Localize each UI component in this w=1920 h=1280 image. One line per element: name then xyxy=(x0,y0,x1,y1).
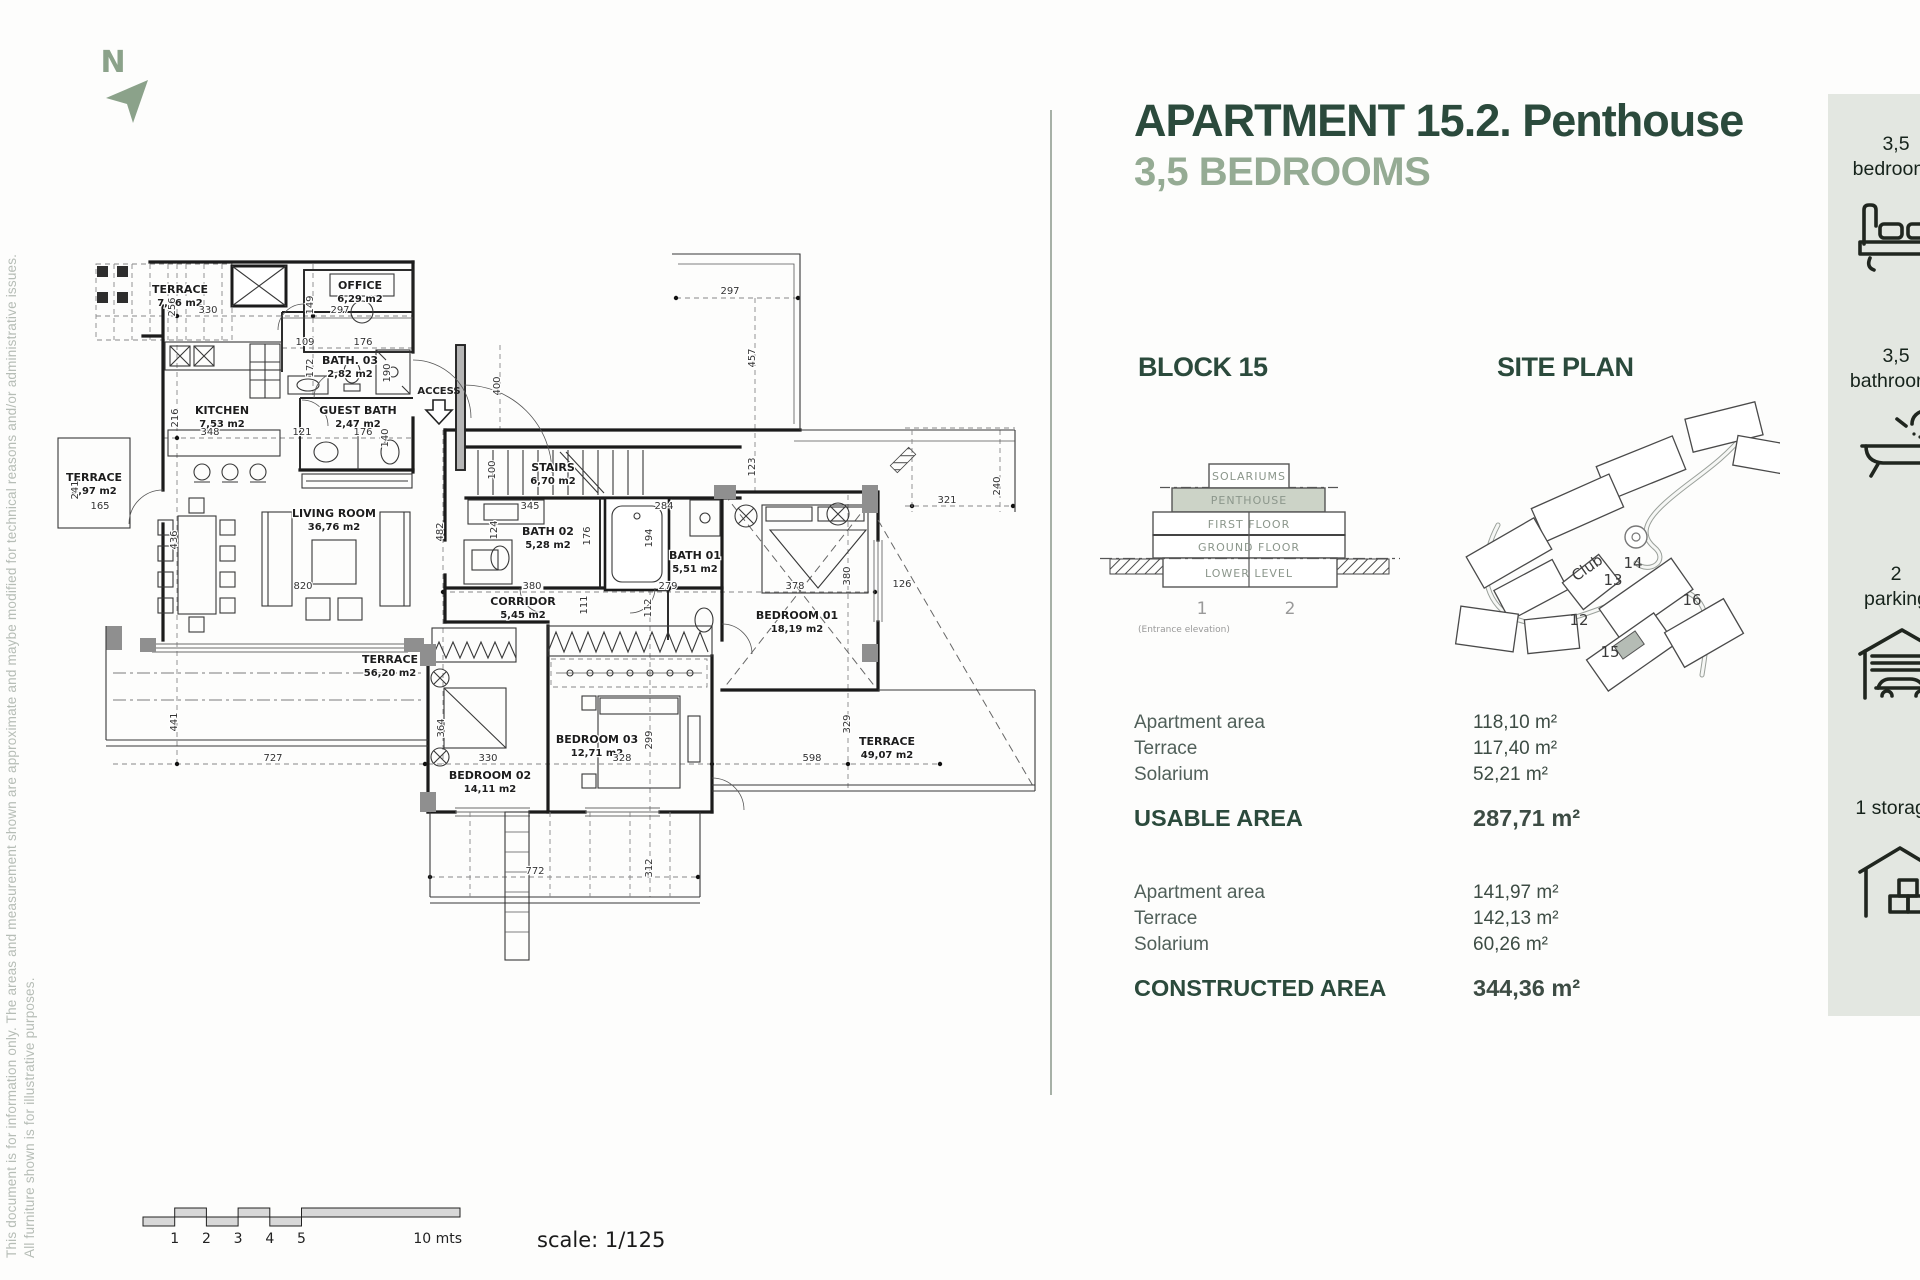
svg-text:321: 321 xyxy=(937,495,956,506)
total-label: CONSTRUCTED AREA xyxy=(1134,973,1473,1003)
svg-text:299: 299 xyxy=(644,730,655,749)
svg-text:5,45 m2: 5,45 m2 xyxy=(500,610,546,621)
svg-text:7,56 m2: 7,56 m2 xyxy=(157,298,203,309)
total-value: 344,36 m² xyxy=(1473,973,1580,1003)
sidebar-item-parking: 2 parking xyxy=(1836,562,1920,612)
unit-number: 2 xyxy=(1285,599,1296,619)
svg-text:328: 328 xyxy=(612,753,631,764)
svg-text:109: 109 xyxy=(295,337,314,348)
row-value: 117,40 m² xyxy=(1473,736,1557,762)
svg-text:OFFICE: OFFICE xyxy=(338,279,382,292)
row-value: 141,97 m² xyxy=(1473,880,1559,906)
svg-text:5,51 m2: 5,51 m2 xyxy=(672,564,718,575)
svg-text:123: 123 xyxy=(747,457,758,476)
svg-text:112: 112 xyxy=(643,598,654,617)
level-label: GROUND FLOOR xyxy=(1198,541,1300,554)
svg-text:598: 598 xyxy=(802,753,821,764)
table-row: Solarium 60,26 m² xyxy=(1134,932,1604,958)
row-label: Solarium xyxy=(1134,932,1473,958)
wardrobes xyxy=(432,626,712,687)
scale-tick: 1 xyxy=(170,1231,179,1247)
block15-label: 15 xyxy=(1600,643,1619,661)
svg-text:BEDROOM 02: BEDROOM 02 xyxy=(449,769,531,782)
svg-text:312: 312 xyxy=(644,858,655,877)
svg-text:124: 124 xyxy=(489,520,500,539)
north-label: N xyxy=(100,45,125,80)
svg-text:KITCHEN: KITCHEN xyxy=(195,404,249,417)
svg-text:279: 279 xyxy=(658,581,677,592)
storage-label: 1 storage xyxy=(1855,797,1920,819)
svg-text:400: 400 xyxy=(492,376,503,395)
bathrooms-label: bathrooms xyxy=(1850,370,1920,392)
block16-label: 16 xyxy=(1682,591,1701,609)
disclaimer-line2: All furniture shown is for illustrative … xyxy=(22,977,37,1258)
block12-label: 12 xyxy=(1569,611,1588,629)
north-compass-icon: N xyxy=(100,45,148,123)
table-row: Solarium 52,21 m² xyxy=(1134,762,1604,788)
svg-text:216: 216 xyxy=(170,408,181,427)
svg-text:121: 121 xyxy=(292,427,311,438)
table-row: Terrace 142,13 m² xyxy=(1134,906,1604,932)
sidebar-item-bedrooms: 3,5 bedrooms xyxy=(1836,132,1920,182)
svg-text:TERRACE: TERRACE xyxy=(859,735,915,748)
svg-text:378: 378 xyxy=(785,581,804,592)
svg-text:441: 441 xyxy=(169,712,180,731)
svg-text:126: 126 xyxy=(892,579,911,590)
svg-text:457: 457 xyxy=(747,348,758,367)
row-value: 142,13 m² xyxy=(1473,906,1559,932)
level-label: LOWER LEVEL xyxy=(1205,567,1293,580)
scale-tick: 3 xyxy=(234,1231,243,1247)
block-elevation-diagram: SOLARIUMS PENTHOUSE FIRST FLOOR GROUND F… xyxy=(1100,440,1400,640)
svg-text:14,11 m2: 14,11 m2 xyxy=(464,784,517,795)
svg-text:TERRACE: TERRACE xyxy=(152,283,208,296)
scale-tick: 4 xyxy=(265,1231,274,1247)
site-plan-map: Club 14 13 12 16 15 xyxy=(1440,385,1780,695)
svg-text:820: 820 xyxy=(293,581,312,592)
scale-tick: 2 xyxy=(202,1231,211,1247)
svg-text:329: 329 xyxy=(842,714,853,733)
svg-text:176: 176 xyxy=(353,337,372,348)
svg-text:6,29 m2: 6,29 m2 xyxy=(337,294,383,305)
svg-text:380: 380 xyxy=(842,566,853,585)
svg-text:364: 364 xyxy=(436,718,447,737)
svg-text:2,82 m2: 2,82 m2 xyxy=(327,369,373,380)
scale-tick: 5 xyxy=(297,1231,306,1247)
svg-text:BEDROOM 01: BEDROOM 01 xyxy=(756,609,838,622)
block14-label: 14 xyxy=(1623,554,1642,572)
svg-text:380: 380 xyxy=(522,581,541,592)
svg-text:165: 165 xyxy=(90,501,109,512)
row-label: Solarium xyxy=(1134,762,1473,788)
svg-text:100: 100 xyxy=(487,460,498,479)
svg-text:GUEST BATH: GUEST BATH xyxy=(319,404,396,417)
skylight-shaft xyxy=(232,266,286,306)
page-title: APARTMENT 15.2. Penthouse xyxy=(1134,98,1743,143)
table-total-row: USABLE AREA 287,71 m² xyxy=(1134,803,1604,833)
svg-text:BATH. 03: BATH. 03 xyxy=(322,354,378,367)
svg-text:176: 176 xyxy=(582,526,593,545)
row-label: Apartment area xyxy=(1134,880,1473,906)
sidebar-item-bathrooms: 3,5 bathrooms xyxy=(1836,344,1920,394)
svg-text:STAIRS: STAIRS xyxy=(531,461,575,474)
svg-text:149: 149 xyxy=(305,295,316,314)
block13-label: 13 xyxy=(1603,571,1622,589)
level-label: SOLARIUMS xyxy=(1212,470,1286,483)
scale-end-label: 10 mts xyxy=(413,1231,462,1247)
row-value: 60,26 m² xyxy=(1473,932,1548,958)
guest-bath-fixtures xyxy=(302,432,412,488)
svg-text:297: 297 xyxy=(720,286,739,297)
bathtub-icon xyxy=(1856,398,1920,490)
svg-text:TERRACE: TERRACE xyxy=(362,653,418,666)
svg-text:BATH 01: BATH 01 xyxy=(669,549,721,562)
svg-text:194: 194 xyxy=(644,528,655,547)
parking-count: 2 xyxy=(1891,563,1902,585)
svg-text:BEDROOM 03: BEDROOM 03 xyxy=(556,733,638,746)
scale-ratio-label: scale: 1/125 xyxy=(537,1228,665,1252)
vertical-divider xyxy=(1050,110,1052,1095)
level-label: PENTHOUSE xyxy=(1211,494,1287,507)
svg-text:CORRIDOR: CORRIDOR xyxy=(490,595,556,608)
row-value: 52,21 m² xyxy=(1473,762,1548,788)
bedroom02-furniture xyxy=(431,669,506,766)
svg-text:49,07 m2: 49,07 m2 xyxy=(861,750,914,761)
svg-text:5,28 m2: 5,28 m2 xyxy=(525,540,571,551)
block-heading: BLOCK 15 xyxy=(1138,352,1268,383)
row-value: 118,10 m² xyxy=(1473,710,1557,736)
storage-icon xyxy=(1856,832,1920,924)
floor-plan-drawing: N xyxy=(0,0,1100,1280)
svg-text:6,70 m2: 6,70 m2 xyxy=(530,476,576,487)
row-label: Terrace xyxy=(1134,736,1473,762)
row-label: Terrace xyxy=(1134,906,1473,932)
row-label: Apartment area xyxy=(1134,710,1473,736)
svg-text:297: 297 xyxy=(330,305,349,316)
svg-text:436: 436 xyxy=(169,530,180,549)
table-total-row: CONSTRUCTED AREA 344,36 m² xyxy=(1134,973,1604,1003)
svg-text:330: 330 xyxy=(478,753,497,764)
sidebar-item-storage: 1 storage xyxy=(1836,796,1920,821)
disclaimer-line1: This document is for information only. T… xyxy=(4,254,19,1258)
title-block: APARTMENT 15.2. Penthouse 3,5 BEDROOMS xyxy=(1134,98,1743,192)
access-arrow-icon: ACCESS xyxy=(417,386,460,424)
elevation-caption: (Entrance elevation) xyxy=(1138,625,1230,635)
svg-text:482: 482 xyxy=(435,522,446,541)
usable-area-table: Apartment area 118,10 m² Terrace 117,40 … xyxy=(1134,710,1604,833)
table-row: Apartment area 141,97 m² xyxy=(1134,880,1604,906)
car-garage-icon xyxy=(1856,616,1920,708)
scale-bar: 1 2 3 4 5 10 mts scale: 1/125 xyxy=(143,1208,665,1252)
page-subtitle: 3,5 BEDROOMS xyxy=(1134,152,1743,192)
access-label: ACCESS xyxy=(417,386,460,397)
svg-text:LIVING ROOM: LIVING ROOM xyxy=(292,507,376,520)
svg-text:111: 111 xyxy=(579,595,590,614)
parking-label: parking xyxy=(1864,588,1920,610)
svg-text:190: 190 xyxy=(382,363,393,382)
table-row: Apartment area 118,10 m² xyxy=(1134,710,1604,736)
svg-text:284: 284 xyxy=(654,501,673,512)
bedrooms-label: bedrooms xyxy=(1853,158,1920,180)
bathrooms-count: 3,5 xyxy=(1882,345,1909,367)
floorplan-sheet: { "header": {"title": "APARTMENT 15.2. P… xyxy=(0,0,1920,1280)
table-row: Terrace 117,40 m² xyxy=(1134,736,1604,762)
svg-text:140: 140 xyxy=(380,428,391,447)
bed-icon xyxy=(1856,192,1920,284)
svg-text:256: 256 xyxy=(167,297,178,316)
dimension-lines xyxy=(96,264,1015,897)
svg-text:241: 241 xyxy=(70,480,81,499)
svg-text:176: 176 xyxy=(353,427,372,438)
svg-text:345: 345 xyxy=(520,501,539,512)
svg-text:BATH 02: BATH 02 xyxy=(522,525,574,538)
svg-text:348: 348 xyxy=(200,427,219,438)
svg-text:240: 240 xyxy=(992,476,1003,495)
dimension-labels: 256 330 149 297 109 176 172 190 216 348 … xyxy=(70,286,1003,878)
svg-text:772: 772 xyxy=(525,866,544,877)
total-value: 287,71 m² xyxy=(1473,803,1580,833)
total-label: USABLE AREA xyxy=(1134,803,1473,833)
level-label: FIRST FLOOR xyxy=(1208,518,1290,531)
svg-text:330: 330 xyxy=(198,305,217,316)
svg-text:56,20 m2: 56,20 m2 xyxy=(364,668,417,679)
siteplan-heading: SITE PLAN xyxy=(1497,352,1634,383)
svg-text:18,19 m2: 18,19 m2 xyxy=(771,624,824,635)
bedrooms-count: 3,5 xyxy=(1882,133,1909,155)
svg-text:727: 727 xyxy=(263,753,282,764)
svg-text:36,76 m2: 36,76 m2 xyxy=(308,522,361,533)
unit-number: 1 xyxy=(1197,599,1208,619)
svg-text:172: 172 xyxy=(305,358,316,377)
constructed-area-table: Apartment area 141,97 m² Terrace 142,13 … xyxy=(1134,880,1604,1003)
